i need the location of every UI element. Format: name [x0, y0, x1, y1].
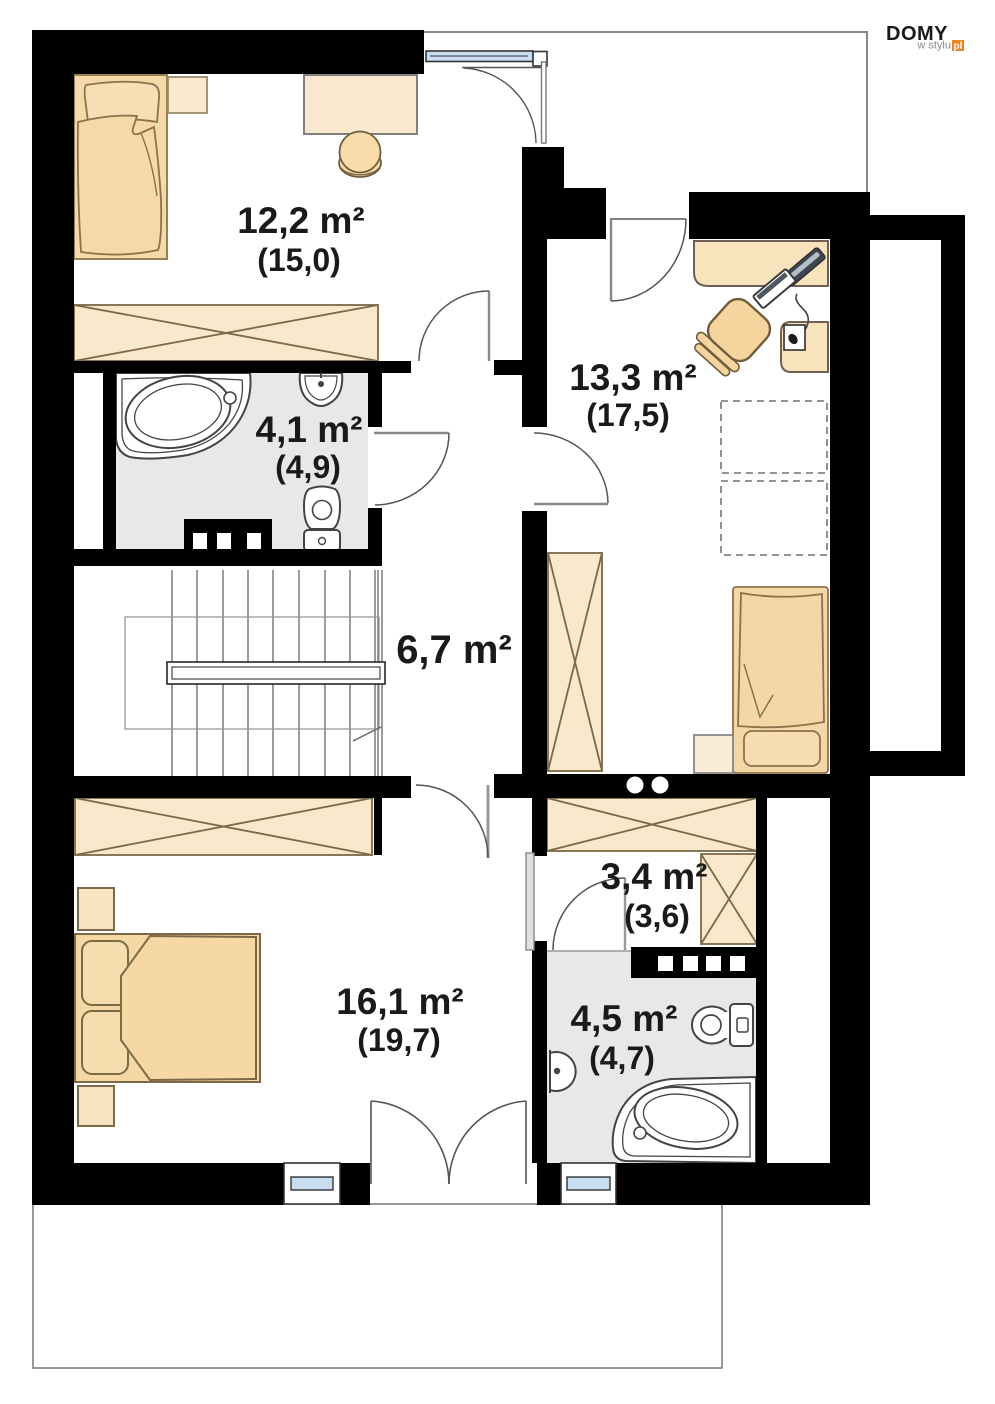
svg-text:(3,6): (3,6): [624, 898, 690, 934]
svg-text:13,3 m²: 13,3 m²: [569, 357, 697, 398]
svg-text:(17,5): (17,5): [586, 397, 670, 433]
svg-text:(4,9): (4,9): [275, 449, 341, 485]
svg-text:(15,0): (15,0): [257, 242, 341, 278]
svg-text:6,7 m²: 6,7 m²: [396, 628, 512, 672]
svg-text:(19,7): (19,7): [357, 1022, 441, 1058]
svg-text:(4,7): (4,7): [589, 1040, 655, 1076]
svg-text:w stylu: w stylu: [916, 40, 951, 52]
svg-text:4,1 m²: 4,1 m²: [256, 409, 363, 450]
svg-text:16,1 m²: 16,1 m²: [336, 981, 464, 1022]
svg-text:pl: pl: [954, 41, 963, 52]
svg-text:12,2 m²: 12,2 m²: [237, 200, 365, 241]
svg-text:3,4 m²: 3,4 m²: [601, 856, 708, 897]
svg-text:4,5 m²: 4,5 m²: [571, 998, 678, 1039]
